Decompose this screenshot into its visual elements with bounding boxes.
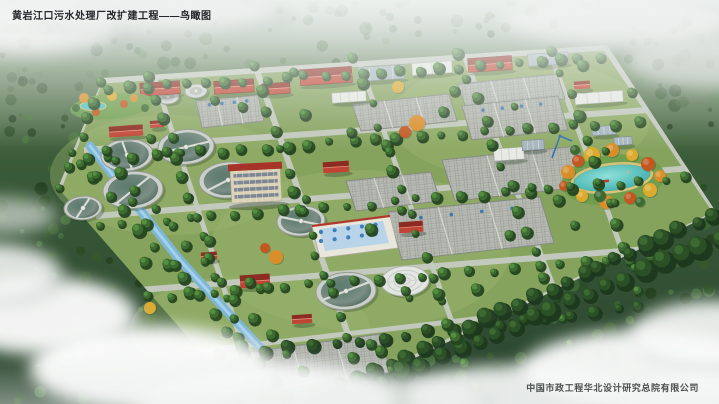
- red-roof-cottage: [323, 160, 353, 178]
- aerial-rendering: 黄岩江口污水处理厂改扩建工程——鸟瞰图 中国市政工程华北设计研究总院有限公司: [0, 0, 719, 404]
- mist-overlay-bottom: [0, 356, 719, 404]
- rendering-title: 黄岩江口污水处理厂改扩建工程——鸟瞰图: [12, 7, 212, 22]
- aerial-rendering-canvas: [0, 0, 719, 404]
- design-institute-credit: 中国市政工程华北设计研究总院有限公司: [526, 381, 699, 394]
